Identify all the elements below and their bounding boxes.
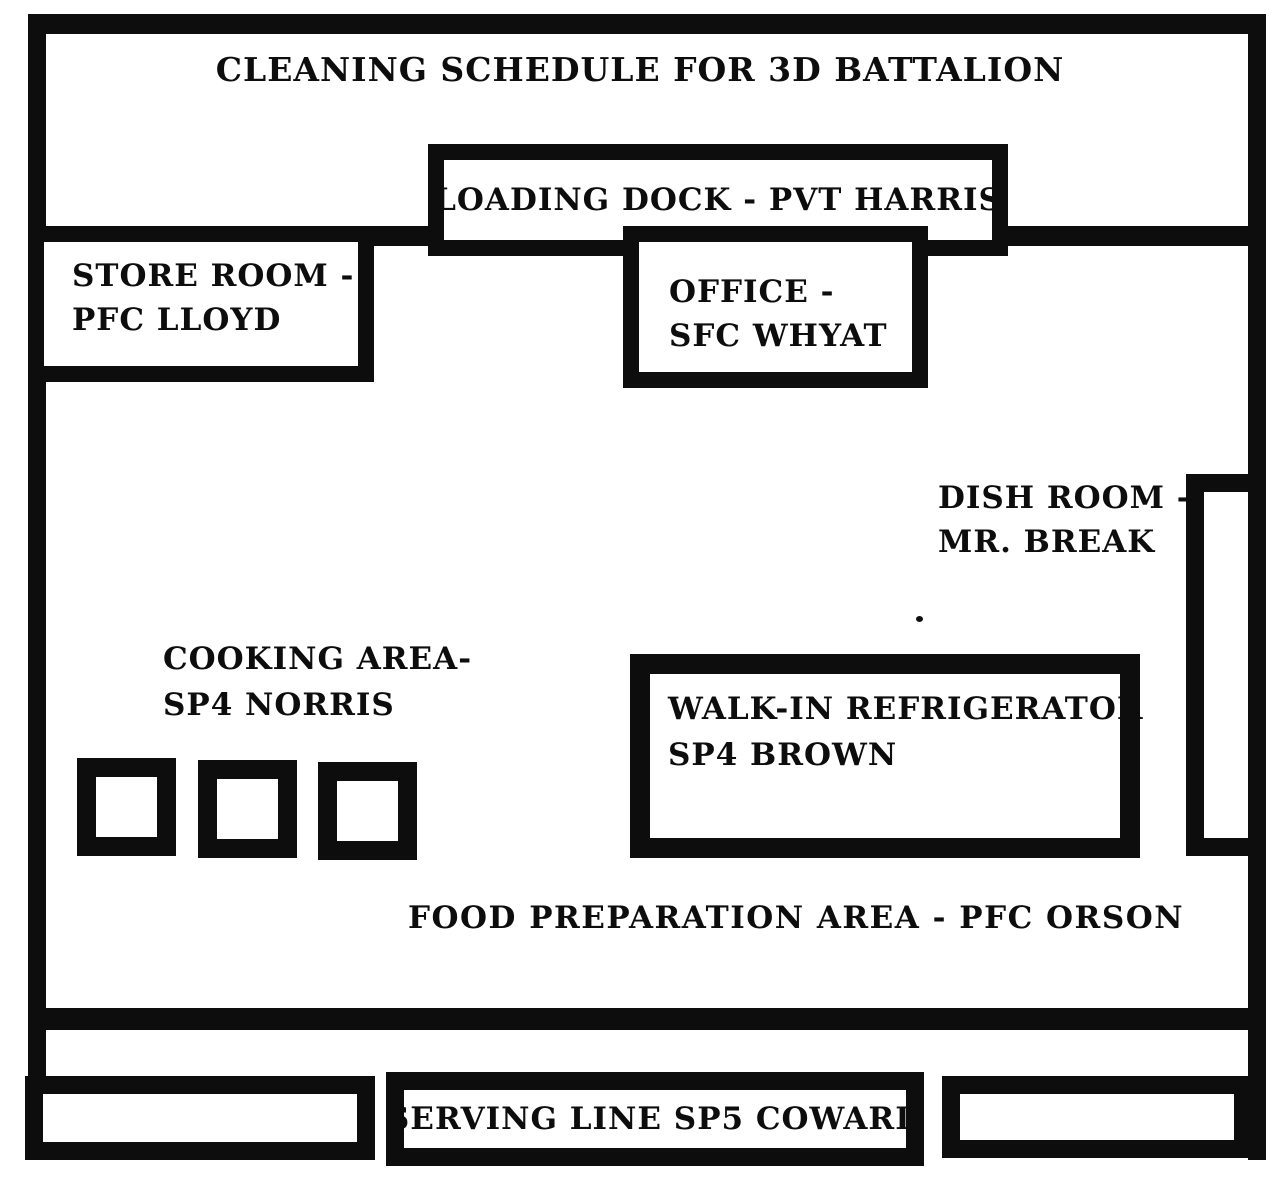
top-wall: [28, 14, 1266, 34]
cooking-area-label-line2: SP4 NORRIS: [163, 682, 472, 728]
serving-line-label: SERVING LINE SP5 COWARD: [387, 1097, 923, 1141]
dish-room-label-line1: DISH ROOM -: [938, 476, 1191, 520]
dish-room-label: DISH ROOM - MR. BREAK: [938, 476, 1191, 564]
office-label-line1: OFFICE -: [669, 270, 912, 314]
loading-dock-label: LOADING DOCK - PVT HARRIS: [434, 178, 1002, 222]
bottom-left-counter-box: [25, 1076, 375, 1160]
scan-artifact-dot: [916, 616, 923, 622]
store-room-label-line1: STORE ROOM -: [72, 254, 358, 298]
walk-in-refrigerator-label-line2: SP4 BROWN: [668, 732, 1120, 778]
food-preparation-area-label: FOOD PREPARATION AREA - PFC ORSON: [408, 896, 1184, 940]
walk-in-refrigerator-box: WALK-IN REFRIGERATOR SP4 BROWN: [630, 654, 1140, 858]
cooking-equipment-square-1: [77, 758, 176, 856]
cooking-equipment-square-3: [318, 762, 417, 860]
cooking-area-label: COOKING AREA- SP4 NORRIS: [163, 636, 472, 728]
store-room-label-line2: PFC LLOYD: [72, 298, 358, 342]
office-label-line2: SFC WHYAT: [669, 314, 912, 358]
left-wall: [28, 14, 46, 1160]
bottom-right-counter-box: [942, 1076, 1252, 1158]
right-wall: [1248, 14, 1266, 1160]
office-box: OFFICE - SFC WHYAT: [623, 226, 928, 388]
dish-room-alcove-bottom-wall: [1186, 838, 1266, 856]
diagram-title: CLEANING SCHEDULE FOR 3D BATTALION: [0, 50, 1280, 89]
cooking-area-label-line1: COOKING AREA-: [163, 636, 472, 682]
interior-wall-lower: [28, 1008, 1266, 1030]
dish-room-label-line2: MR. BREAK: [938, 520, 1191, 564]
store-room-box: STORE ROOM - PFC LLOYD: [28, 226, 374, 382]
walk-in-refrigerator-label-line1: WALK-IN REFRIGERATOR: [668, 686, 1120, 732]
serving-line-box: SERVING LINE SP5 COWARD: [386, 1072, 924, 1166]
dish-room-alcove-top-wall: [1186, 474, 1266, 492]
cooking-equipment-square-2: [198, 760, 297, 858]
kitchen-floor-plan: CLEANING SCHEDULE FOR 3D BATTALION LOADI…: [0, 0, 1280, 1186]
